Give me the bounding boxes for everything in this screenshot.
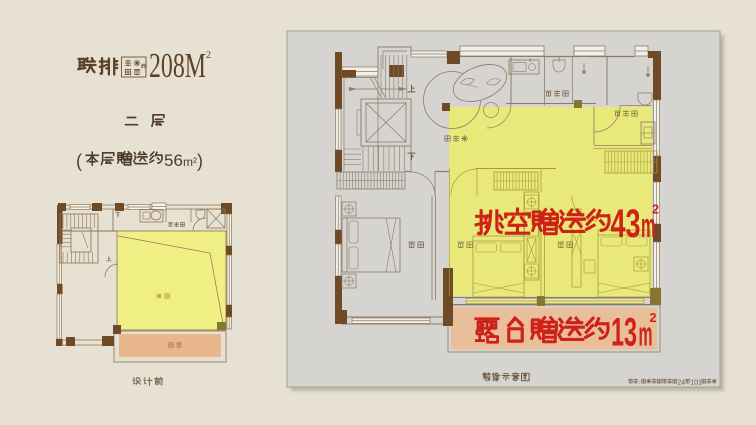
svg-text:56: 56 (164, 151, 183, 170)
svg-text:m²: m² (183, 155, 197, 169)
svg-text:43: 43 (611, 202, 641, 246)
svg-text:101: 101 (690, 380, 702, 387)
svg-text:2: 2 (652, 203, 659, 217)
svg-text:2: 2 (650, 311, 657, 325)
svg-text:208M: 208M (149, 47, 206, 85)
svg-text:): ) (197, 151, 203, 171)
svg-text:24: 24 (677, 380, 685, 387)
svg-text:2: 2 (206, 50, 211, 61)
svg-text::: : (638, 379, 640, 386)
svg-text:(: ( (76, 151, 82, 171)
svg-text:13: 13 (611, 311, 637, 355)
